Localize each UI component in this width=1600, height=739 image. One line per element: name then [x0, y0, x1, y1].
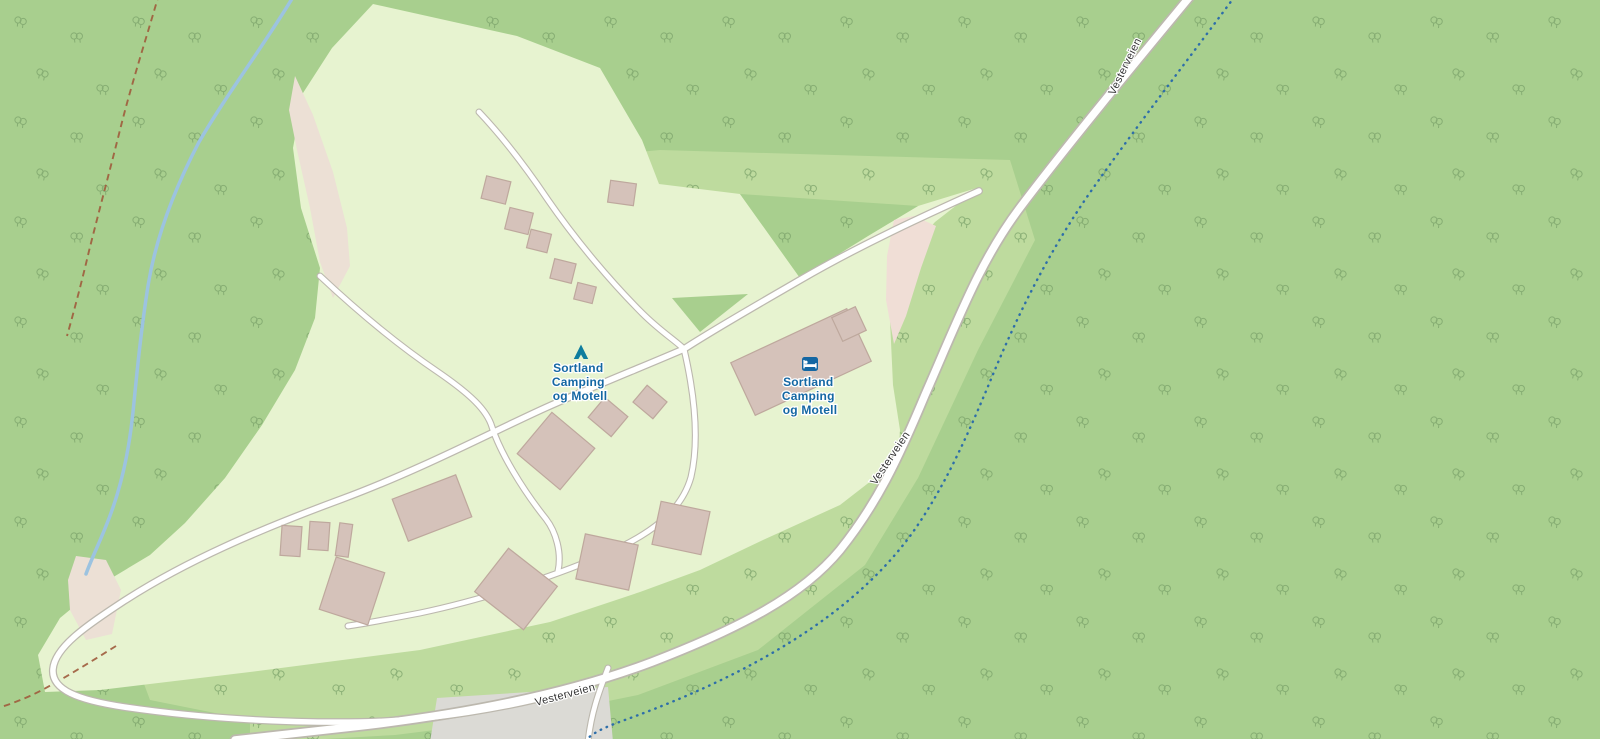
large-cabin	[652, 501, 710, 554]
cabin	[608, 180, 637, 205]
cabin	[574, 282, 597, 303]
motel-label: Sortland Camping og Motell	[782, 375, 838, 417]
campsite-label: Sortland Camping og Motell	[552, 361, 608, 403]
cabin	[280, 525, 302, 556]
map-canvas[interactable]: Sortland Camping og Motell Sortland Camp…	[0, 0, 1600, 739]
motel-icon	[802, 357, 818, 371]
map-container: Sortland Camping og Motell Sortland Camp…	[0, 0, 1600, 739]
cabin	[308, 521, 330, 550]
